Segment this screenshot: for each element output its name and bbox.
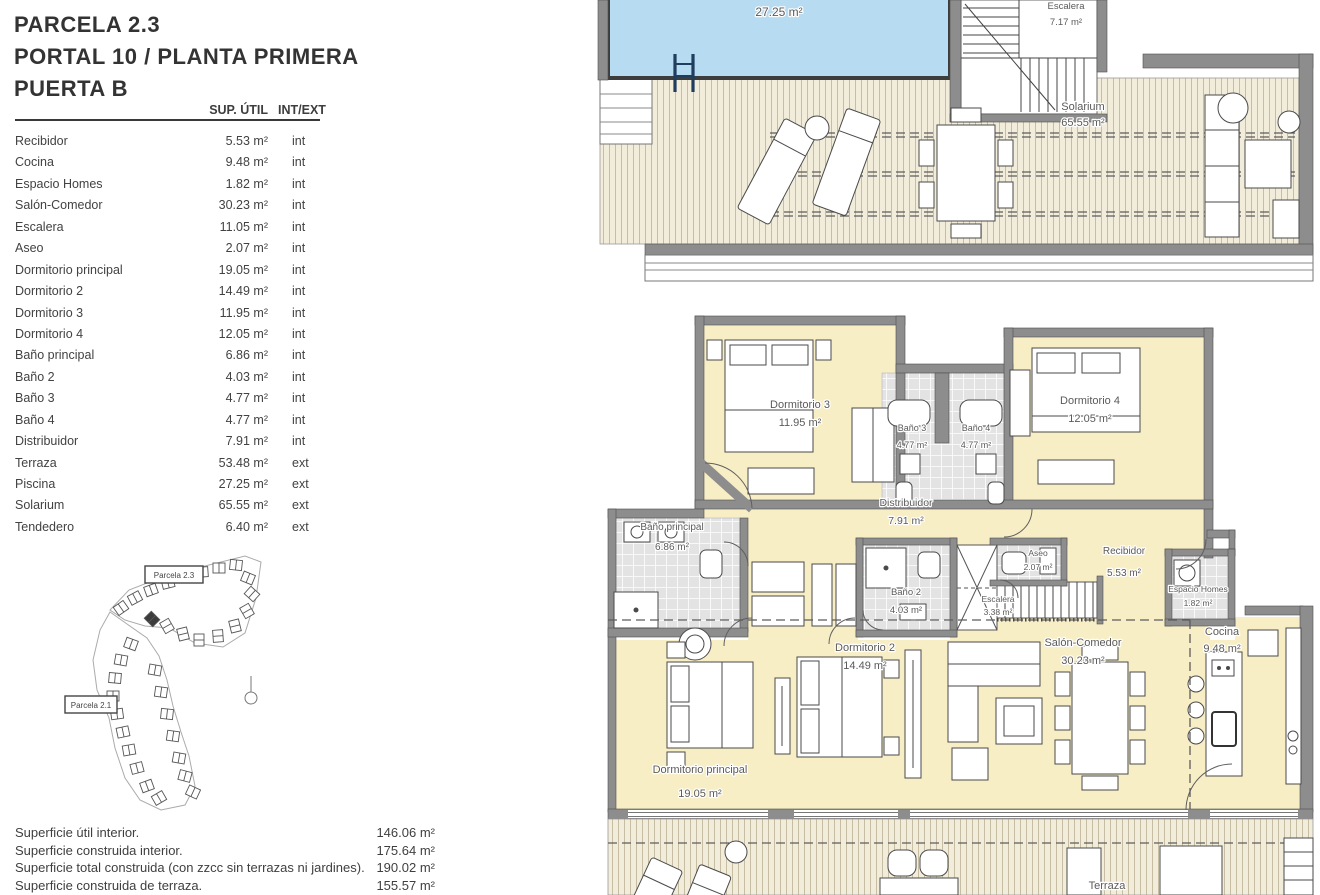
svg-text:30.23 m²: 30.23 m² [1061, 655, 1105, 667]
floorplan-sheet: PARCELA 2.3 PORTAL 10 / PLANTA PRIMERA P… [0, 0, 1320, 895]
solarium-label: Solarium [1061, 101, 1104, 113]
solarium-area: 65.55 m² [1061, 117, 1105, 129]
totals-table: Superficie útil interior.146.06 m² Super… [15, 824, 435, 895]
svg-text:Dormitorio 3: Dormitorio 3 [770, 399, 830, 411]
svg-text:Parcela 2.1: Parcela 2.1 [71, 701, 112, 710]
table-header-type: INT/EXT [278, 103, 326, 117]
svg-text:12.05 m²: 12.05 m² [1068, 413, 1112, 425]
table-row: Baño principal6.86 m²int [15, 345, 335, 366]
floor-plan: Dormitorio 3 11.95 m² Baño 3 4.77 m² Bañ… [600, 312, 1320, 895]
table-row: Baño 34.77 m²int [15, 388, 335, 409]
roof-stairs-label: Escalera [1048, 1, 1086, 12]
table-row: Salón-Comedor30.23 m²int [15, 195, 335, 216]
svg-text:9.48 m²: 9.48 m² [1203, 643, 1241, 655]
table-row: Dormitorio principal19.05 m²int [15, 260, 335, 281]
svg-text:Baño 2: Baño 2 [891, 587, 921, 598]
svg-text:Espacio Homes: Espacio Homes [1168, 584, 1228, 594]
svg-text:2.07 m²: 2.07 m² [1024, 562, 1053, 572]
svg-text:Cocina: Cocina [1205, 626, 1240, 638]
page-title-line3: PUERTA B [14, 76, 128, 102]
table-row: Espacio Homes1.82 m²int [15, 174, 335, 195]
table-row: Dormitorio 214.49 m²int [15, 281, 335, 302]
site-buildings [107, 559, 260, 805]
site-flag-icon [245, 676, 257, 704]
svg-text:Dormitorio 2: Dormitorio 2 [835, 642, 895, 654]
svg-text:Baño 4: Baño 4 [962, 423, 991, 433]
svg-text:1.82 m²: 1.82 m² [1184, 598, 1213, 608]
svg-text:Terraza: Terraza [1089, 880, 1127, 892]
svg-text:Recibidor: Recibidor [1103, 546, 1146, 557]
svg-text:Baño 3: Baño 3 [898, 423, 927, 433]
svg-text:4.77 m²: 4.77 m² [961, 440, 992, 450]
svg-text:11.95 m²: 11.95 m² [779, 417, 822, 429]
site-plan-sketch: Parcela 2.3 Parcela 2.1 [55, 548, 275, 818]
svg-text:14.49 m²: 14.49 m² [843, 660, 887, 672]
side-table [805, 116, 829, 140]
svg-text:Baño principal: Baño principal [640, 522, 703, 533]
totals-row: Superficie construida de terraza.155.57 … [15, 877, 435, 895]
svg-text:3.38 m²: 3.38 m² [984, 607, 1013, 617]
table-row: Solarium65.55 m²ext [15, 495, 335, 516]
svg-text:Salón-Comedor: Salón-Comedor [1044, 637, 1121, 649]
pool: 27.25 m² [608, 0, 950, 92]
svg-text:4.03 m²: 4.03 m² [890, 605, 922, 616]
table-header-rule [15, 119, 320, 121]
svg-text:4.77 m²: 4.77 m² [897, 440, 928, 450]
svg-text:Dormitorio 4: Dormitorio 4 [1060, 395, 1120, 407]
table-row: Tendedero6.40 m²ext [15, 517, 335, 538]
roof-stairs: Escalera 7.17 m² [961, 0, 1097, 114]
area-table: Recibidor5.53 m²int Cocina9.48 m²int Esp… [15, 131, 335, 538]
table-row: Terraza53.48 m²ext [15, 453, 335, 474]
svg-text:Escalera: Escalera [981, 594, 1014, 604]
table-row: Baño 24.03 m²int [15, 367, 335, 388]
svg-text:5.53 m²: 5.53 m² [1107, 568, 1142, 579]
page-title-line2: PORTAL 10 / PLANTA PRIMERA [14, 44, 359, 70]
deck-steps [600, 78, 652, 144]
table-row: Recibidor5.53 m²int [15, 131, 335, 152]
roof-plan: 27.25 m² Escalera 7.17 m² [585, 0, 1320, 292]
roof-balustrade [645, 255, 1313, 281]
pool-area-label: 27.25 m² [755, 5, 802, 19]
table-row: Escalera11.05 m²int [15, 217, 335, 238]
svg-text:Aseo: Aseo [1028, 548, 1048, 558]
table-row: Distribuidor7.91 m²int [15, 431, 335, 452]
svg-text:Distribuidor: Distribuidor [879, 497, 933, 509]
svg-text:Parcela 2.3: Parcela 2.3 [154, 571, 195, 580]
roof-stairs-area: 7.17 m² [1050, 17, 1082, 28]
table-row: Dormitorio 412.05 m²int [15, 324, 335, 345]
svg-text:Dormitorio principal: Dormitorio principal [653, 764, 748, 776]
table-row: Piscina27.25 m²ext [15, 474, 335, 495]
totals-row: Superficie construida interior.175.64 m² [15, 842, 435, 860]
table-row: Cocina9.48 m²int [15, 152, 335, 173]
table-row: Aseo2.07 m²int [15, 238, 335, 259]
table-header-area: SUP. ÚTIL [15, 103, 268, 117]
svg-text:7.91 m²: 7.91 m² [888, 515, 924, 527]
terraza [608, 819, 1313, 895]
table-row: Dormitorio 311.95 m²int [15, 303, 335, 324]
totals-row: Superficie útil interior.146.06 m² [15, 824, 435, 842]
svg-text:6.86 m²: 6.86 m² [655, 542, 690, 553]
svg-text:19.05 m²: 19.05 m² [678, 788, 722, 800]
totals-row: Superficie total construida (con zzcc si… [15, 859, 435, 877]
site-label-parcela-21: Parcela 2.1 [65, 696, 117, 713]
page-title-line1: PARCELA 2.3 [14, 12, 160, 38]
table-row: Baño 44.77 m²int [15, 410, 335, 431]
site-label-parcela-23: Parcela 2.3 [145, 566, 203, 583]
